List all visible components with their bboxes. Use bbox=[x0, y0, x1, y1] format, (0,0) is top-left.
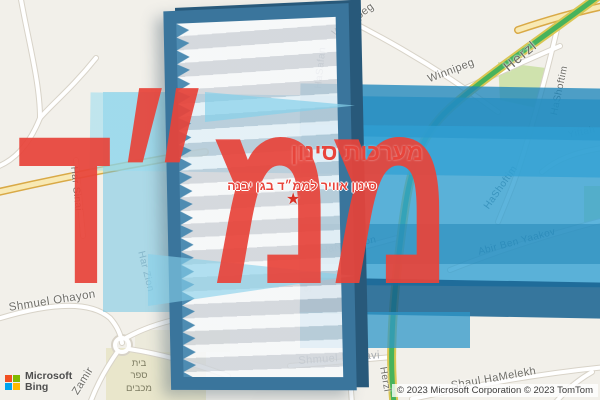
bing-logo[interactable]: Microsoft Bing bbox=[5, 371, 72, 394]
overlay-title: מערכות סינון bbox=[262, 139, 452, 166]
school-line-2: ספר bbox=[112, 370, 166, 382]
brand-bing: Bing bbox=[25, 382, 72, 394]
school-line-3: מכבים bbox=[112, 383, 166, 395]
ms-square-blue bbox=[5, 383, 12, 390]
bing-wordmark: Microsoft Bing bbox=[25, 371, 72, 394]
microsoft-logo-icon bbox=[5, 375, 20, 390]
overlay-subtitle: סינון אוויר לממ״ד בגן יבנה bbox=[222, 179, 382, 193]
ms-square-yellow bbox=[13, 383, 20, 390]
school-poi-label: בית ספר מכבים bbox=[112, 358, 166, 395]
star-icon: ★ bbox=[286, 189, 300, 209]
map-screenshot: { "overlay": { "title": "מערכות סינון", … bbox=[0, 0, 600, 400]
ms-square-red bbox=[5, 375, 12, 382]
school-line-1: בית bbox=[112, 358, 166, 370]
ms-square-green bbox=[13, 375, 20, 382]
copyright-notice: © 2023 Microsoft Corporation © 2023 TomT… bbox=[392, 384, 598, 397]
